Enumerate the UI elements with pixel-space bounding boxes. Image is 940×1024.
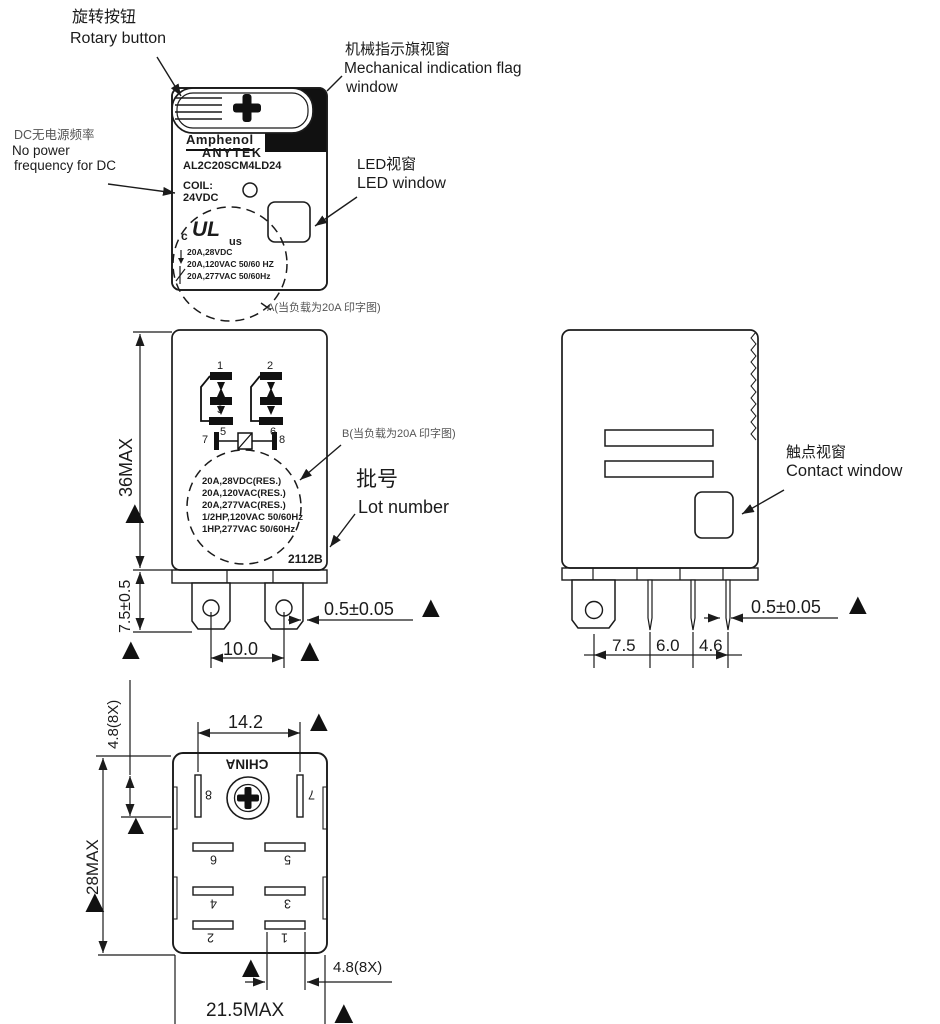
side-rating-line: 20A,120VAC(RES.) [202,489,286,500]
model-number: AL2C20SCM4LD24 [183,160,281,173]
dim-6-0: 6.0 [656,636,680,656]
schematic-pin-8: 8 [279,434,285,447]
schematic-pin-3: 3 [217,404,223,417]
relay-dimension-drawing: 旋转按钮 Rotary button 机械指示旗视窗 Mechanical in… [0,0,940,1024]
front-rating-line: 20A,120VAC 50/60 HZ [187,260,274,270]
dim-slot-bottom: 4.8(8X) [333,959,382,976]
flag-window-label-zh: 机械指示旗视窗 [345,41,450,58]
dim-4-6: 4.6 [699,636,723,656]
schematic-pin-5: 5 [220,426,226,439]
bottom-pin-8: 8 [202,787,215,801]
triangle-marker: ▲ [328,998,360,1024]
blade-terminal [572,580,615,628]
led-window [268,202,310,242]
rotary-button-label-zh: 旋转按钮 [72,9,136,27]
dc-note-label-en2: frequency for DC [14,158,116,174]
pin-terminal [691,580,695,630]
dim-pin-length: 7.5±0.5 [117,580,135,633]
coil-label: COIL: [183,180,213,193]
triangle-marker: ▲ [236,954,266,981]
bottom-pin-7: 7 [305,787,318,801]
schematic-pin-6: 6 [270,426,276,439]
dim-pin-span: 10.0 [223,639,258,660]
flag-window-label-en1: Mechanical indication flag [344,60,522,78]
dim-height-36max: 36MAX [116,438,137,497]
dim-14-2: 14.2 [228,712,263,733]
bottom-pin-1: 1 [278,930,291,944]
rotary-button-label-en: Rotary button [70,30,166,48]
flag-window-label-en2: window [346,79,398,97]
triangle-marker: ▲ [416,594,446,621]
ul-mark-icon: UL [192,218,220,242]
bottom-pin-6: 6 [207,852,220,866]
print-area-a-label: A(当负载为20A 印字图) [267,302,381,315]
front-rating-line: 20A,277VAC 50/60Hz [187,272,270,282]
dim-7-5: 7.5 [612,636,636,656]
triangle-marker: ▲ [119,498,151,527]
pin-terminal [726,580,730,630]
bottom-pin-3: 3 [281,896,294,910]
depth-view-outline [562,330,758,630]
bottom-pin-5: 5 [281,852,294,866]
side-rating-line: 20A,277VAC(RES.) [202,501,286,512]
dc-note-label-zh: DC无电源频率 [14,128,95,142]
lot-number-label-en: Lot number [358,497,449,518]
schematic-pin-7: 7 [202,434,208,447]
contact-window-label-en: Contact window [786,462,902,481]
bottom-view-outline [173,753,327,953]
schematic-pin-2: 2 [267,360,273,373]
triangle-marker: ▲ [304,708,334,735]
triangle-marker: ▲ [843,591,873,618]
side-rating-line: 1/2HP,120VAC 50/60Hz [202,513,303,524]
triangle-marker: ▲ [116,636,146,663]
front-rating-line: 20A,28VDC [187,248,232,258]
print-area-b-label: B(当负载为20A 印字图) [342,428,456,441]
dc-note-label-en1: No power [12,143,70,159]
triangle-marker: ▲ [79,887,111,916]
schematic-pin-1: 1 [217,360,223,373]
side-rating-line: 20A,28VDC(RES.) [202,477,281,488]
dim-slot-left: 4.8(8X) [105,700,122,749]
triangle-marker: ▲ [294,636,326,665]
ul-mark-c: c [181,230,188,244]
dim-pin-thickness: 0.5±0.05 [324,599,394,620]
lot-number-label-zh: 批号 [356,468,398,492]
bottom-pin-2: 2 [204,930,217,944]
lot-number-value: 2112B [288,553,323,567]
led-window-label-zh: LED视窗 [357,156,416,173]
dim-length-21-5max: 21.5MAX [206,1000,284,1022]
brand-anytek: ANYTEK [202,146,262,160]
origin-marking: CHINA [214,756,280,772]
pin-terminal [648,580,652,630]
triangle-marker: ▲ [122,812,150,837]
contact-window-label-zh: 触点视窗 [786,444,846,461]
coil-voltage: 24VDC [183,192,218,205]
dim-pin-thickness-depth: 0.5±0.05 [751,597,821,618]
bottom-pin-4: 4 [207,896,220,910]
side-rating-line: 1HP,277VAC 50/60Hz [202,525,295,536]
led-window-label-en: LED window [357,175,446,193]
